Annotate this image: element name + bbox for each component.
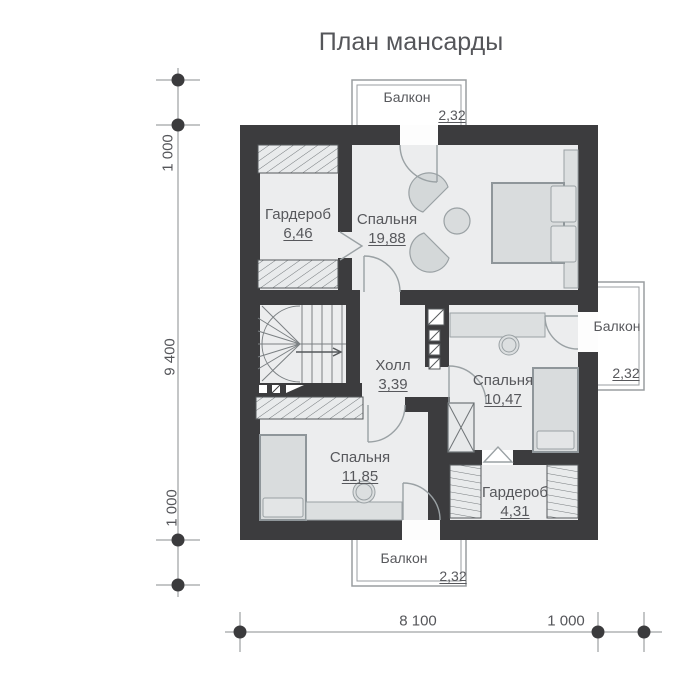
closet-bedroom-bottom — [256, 397, 363, 419]
room-label-wardrobe-bottom: Гардероб 4,31 — [482, 483, 548, 521]
balcony-right-area: 2,32 — [612, 365, 639, 381]
closet-wardrobe-bottom-right — [547, 465, 578, 518]
balcony-right-label: Балкон — [594, 318, 641, 334]
desk — [450, 313, 545, 337]
dim-left-top: 1 000 — [160, 134, 177, 172]
closet-wardrobe-bottom-left — [450, 465, 481, 518]
coffee-table — [444, 208, 470, 234]
desk — [306, 502, 402, 520]
room-label-bedroom-bottom: Спальня 11,85 — [330, 448, 390, 486]
pillow — [551, 226, 576, 262]
dim-left-bottom: 1 000 — [164, 489, 181, 527]
floor-plan-drawing — [0, 0, 688, 680]
balcony-bottom-area: 2,32 — [439, 568, 466, 584]
room-label-bedroom-right: Спальня 10,47 — [473, 371, 533, 409]
dim-bottom-right: 1 000 — [547, 613, 585, 630]
room-label-bedroom-large: Спальня 19,88 — [357, 210, 417, 248]
closet-wardrobe-top-a — [258, 145, 338, 173]
balcony-top-area: 2,32 — [438, 107, 465, 123]
pillow — [263, 498, 303, 517]
dim-left-middle: 9 400 — [162, 338, 179, 376]
balcony-top-label: Балкон — [384, 89, 431, 105]
room-label-wardrobe-top: Гардероб 6,46 — [265, 205, 331, 243]
balcony-door-opening-top — [400, 125, 438, 145]
room-label-hall: Холл 3,39 — [375, 356, 410, 394]
balcony-door-opening-bottom — [402, 520, 440, 540]
duct-cabinet — [448, 403, 474, 452]
page-title: План мансарды — [319, 28, 503, 57]
pillow — [537, 431, 574, 449]
balcony-bottom-label: Балкон — [381, 550, 428, 566]
dim-bottom-main: 8 100 — [399, 613, 437, 630]
pillow — [551, 186, 576, 222]
closet-wardrobe-top-b — [258, 260, 338, 288]
floor-plan-page: План мансарды Гардероб 6,46 Спальня 19,8… — [0, 0, 688, 680]
